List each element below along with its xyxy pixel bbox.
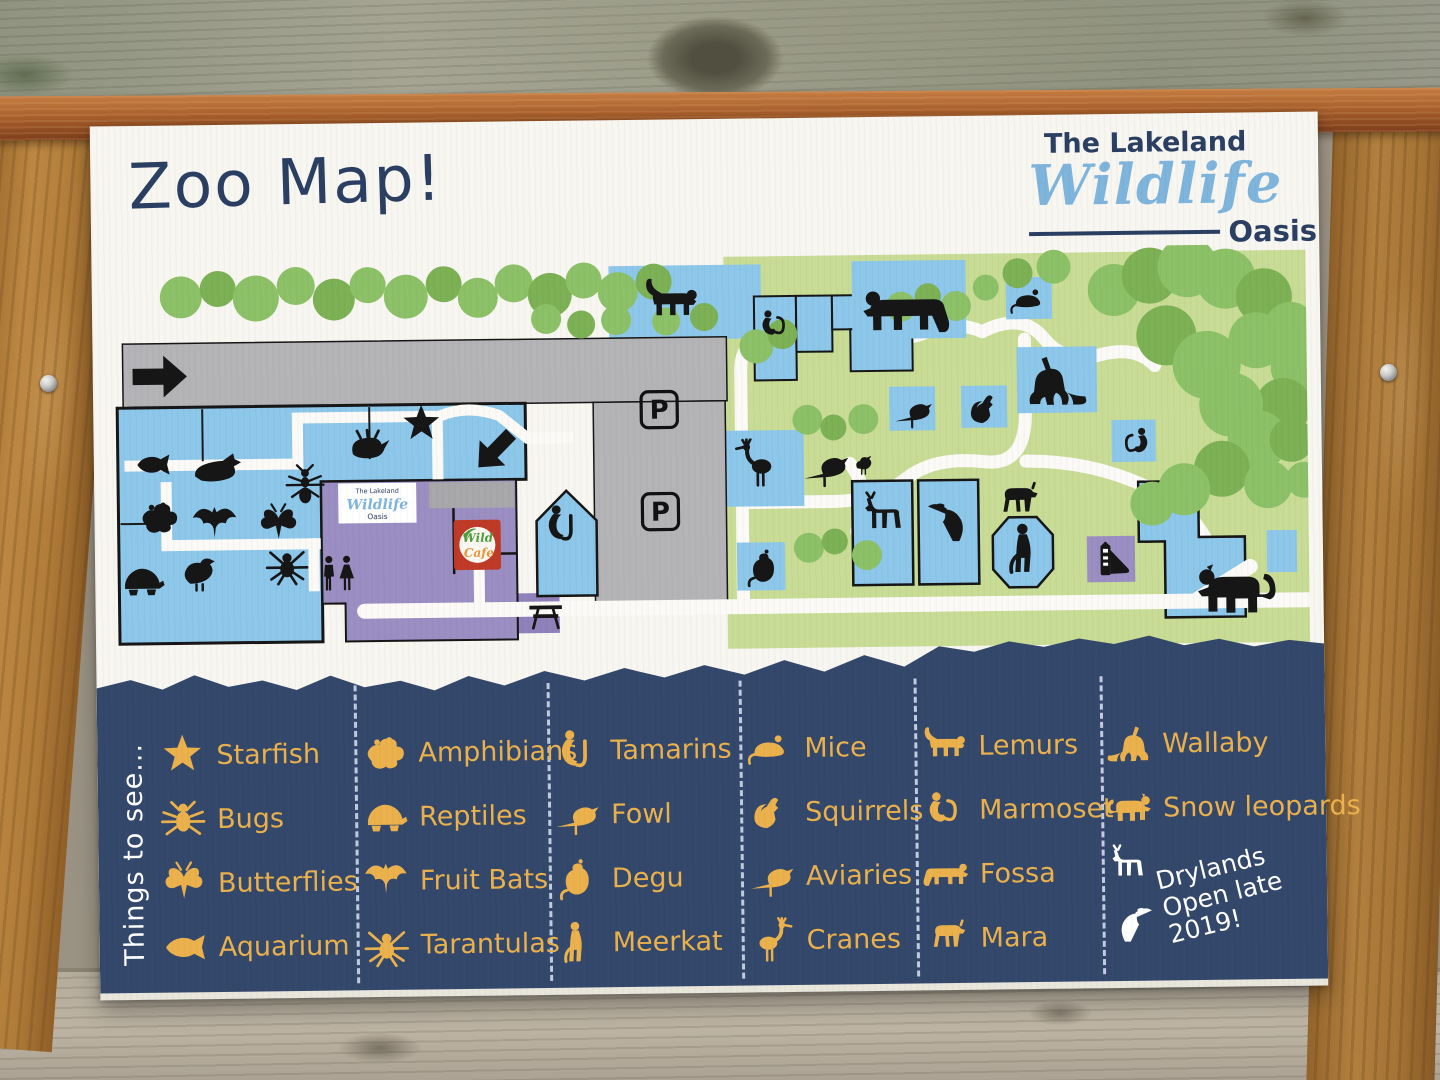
- legend-label: Aviaries: [806, 859, 913, 891]
- legend-label: Marmoset: [979, 793, 1114, 826]
- things-to-see-band: Things to see... StarfishBugsButterflies…: [96, 631, 1328, 1000]
- mini-logo-sign: The Lakeland Wildlife Oasis: [338, 483, 416, 524]
- snow-leopard-icon: [1106, 785, 1153, 832]
- legend-item-fowl: Fowl: [554, 781, 739, 847]
- legend-item-squirrels: Squirrels: [748, 779, 913, 845]
- zoo-map-sign-photo: Zoo Map! The Lakeland Wildlife Oasis: [0, 0, 1440, 1080]
- legend-columns: StarfishBugsButterfliesAquariumAmphibian…: [96, 631, 1328, 1000]
- legend-label: Lemurs: [978, 729, 1078, 761]
- spider-icon: [363, 922, 410, 969]
- svg-text:P: P: [650, 395, 669, 425]
- legend-label: Butterflies: [218, 866, 358, 899]
- legend-item-tarantulas: Tarantulas: [363, 911, 548, 977]
- legend-item-amphibians: Amphibians: [361, 719, 546, 785]
- screw: [1380, 364, 1397, 381]
- legend-label: Starfish: [216, 738, 320, 770]
- legend-item-starfish: Starfish: [159, 721, 356, 787]
- logo-underline: [1029, 230, 1220, 236]
- legend-item-aviaries: Aviaries: [749, 843, 914, 909]
- legend-item-mara: Mara: [923, 904, 1100, 970]
- page-title: Zoo Map!: [127, 141, 444, 223]
- meerkat-icon: [555, 919, 602, 966]
- svg-text:The Lakeland: The Lakeland: [354, 487, 398, 496]
- legend-item-aquarium: Aquarium: [161, 913, 358, 979]
- starfish-icon: [159, 732, 206, 779]
- legend-label: Snow leopards: [1163, 790, 1361, 823]
- legend-label: Fossa: [980, 857, 1056, 889]
- zoo-map-sign: Zoo Map! The Lakeland Wildlife Oasis: [90, 112, 1329, 1001]
- bug-icon: [160, 796, 207, 843]
- legend-column-5: LemursMarmosetFossaMara: [921, 712, 1100, 970]
- bat-icon: [363, 858, 410, 905]
- crane-icon: [749, 917, 796, 964]
- pheasant-icon: [554, 791, 601, 838]
- legend-label: Fruit Bats: [420, 863, 549, 896]
- mouse-icon: [747, 725, 794, 772]
- legend-label: Bugs: [217, 803, 284, 835]
- drylands-note-text: DrylandsOpen late2019!: [1153, 839, 1291, 948]
- butterfly-icon: [161, 860, 208, 907]
- legend-item-fossa: Fossa: [923, 840, 1100, 906]
- legend-label: Tamarins: [610, 733, 732, 765]
- legend-column-6: WallabySnow leopardsDrylandsOpen late201…: [1105, 710, 1322, 947]
- legend-label: Aquarium: [219, 930, 350, 963]
- legend-label: Wallaby: [1162, 727, 1269, 759]
- tamarin-icon: [553, 727, 600, 774]
- fossa-icon: [923, 851, 970, 898]
- mara-icon: [923, 915, 970, 962]
- svg-text:Cafe: Cafe: [464, 546, 495, 560]
- legend-item-marmoset: Marmoset: [922, 776, 1099, 842]
- deer-icon: [1107, 844, 1154, 891]
- legend-label: Meerkat: [613, 925, 723, 957]
- legend-label: Degu: [612, 862, 684, 894]
- legend-label: Squirrels: [805, 795, 924, 827]
- legend-column-2: AmphibiansReptilesFruit BatsTarantulas: [361, 719, 548, 977]
- frog-icon: [361, 730, 408, 777]
- squirrel-icon: [748, 789, 795, 836]
- legend-column-3: TamarinsFowlDeguMeerkat: [553, 717, 740, 975]
- screw: [40, 375, 57, 392]
- legend-item-wallaby: Wallaby: [1105, 710, 1320, 777]
- legend-item-bugs: Bugs: [160, 785, 357, 851]
- zoo-map-illustration: P P The Lakeland Wildlife Oasis Wild Caf…: [105, 244, 1310, 664]
- lakeland-wildlife-oasis-logo: The Lakeland Wildlife Oasis: [1028, 126, 1317, 252]
- hornbill-icon: [1107, 900, 1154, 947]
- clownfish-icon: [161, 924, 208, 971]
- logo-wildlife-script: Wildlife: [1028, 157, 1317, 214]
- svg-text:Wildlife: Wildlife: [347, 497, 409, 514]
- legend-column-1: StarfishBugsButterfliesAquarium: [159, 721, 358, 979]
- legend-item-snow-leopards: Snow leopards: [1106, 774, 1321, 841]
- turtle-icon: [362, 794, 409, 841]
- svg-text:P: P: [651, 497, 670, 527]
- top-wood-plank: [0, 0, 1440, 96]
- legend-label: Tarantulas: [421, 927, 561, 960]
- drylands-note: DrylandsOpen late2019!: [1107, 842, 1322, 947]
- legend-item-degu: Degu: [555, 845, 740, 911]
- legend-item-tamarins: Tamarins: [553, 717, 738, 783]
- svg-text:Wild: Wild: [462, 531, 494, 545]
- svg-text:Oasis: Oasis: [367, 512, 388, 521]
- lemur-icon: [921, 723, 968, 770]
- legend-item-lemurs: Lemurs: [921, 712, 1098, 778]
- degu-icon: [555, 855, 602, 902]
- legend-item-cranes: Cranes: [749, 907, 914, 973]
- wild-cafe-sign: Wild Cafe: [454, 520, 502, 571]
- legend-label: Cranes: [807, 923, 902, 955]
- legend-label: Reptiles: [419, 800, 527, 832]
- legend-label: Fowl: [611, 798, 672, 830]
- legend-label: Mice: [804, 732, 867, 764]
- legend-column-4: MiceSquirrelsAviariesCranes: [747, 715, 914, 973]
- tamarin-house: [536, 490, 597, 596]
- legend-item-meerkat: Meerkat: [555, 909, 740, 975]
- legend-label: Mara: [980, 921, 1048, 953]
- aviary-bird-icon: [749, 853, 796, 900]
- legend-item-mice: Mice: [747, 715, 912, 781]
- wallaby-icon: [1105, 721, 1152, 768]
- legend-item-fruit-bats: Fruit Bats: [363, 847, 548, 913]
- legend-item-reptiles: Reptiles: [362, 783, 547, 849]
- legend-item-butterflies: Butterflies: [161, 849, 358, 915]
- marmoset-icon: [922, 787, 969, 834]
